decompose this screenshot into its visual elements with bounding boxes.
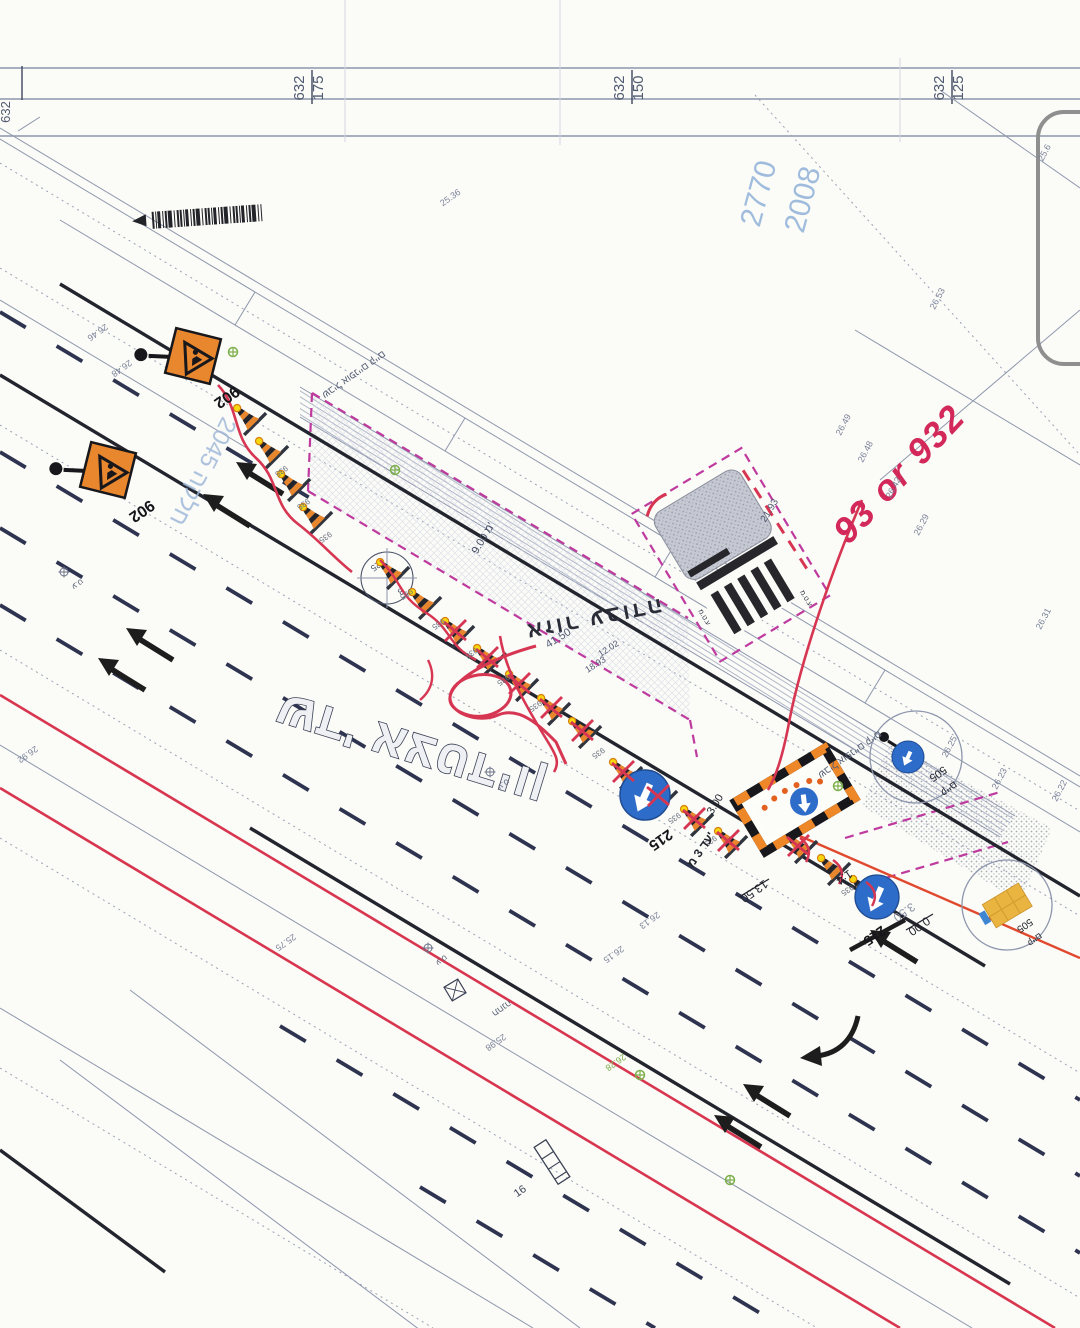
dim-label: עד 3 מ' <box>684 829 718 869</box>
elevation: 26.22 <box>1050 778 1069 803</box>
station-offset: 150 <box>630 75 647 100</box>
block-number: 2008 <box>778 163 827 236</box>
elevation: 26.49 <box>834 412 853 437</box>
ladder-symbol <box>534 1140 570 1185</box>
cone-label: 935 <box>666 811 683 826</box>
cone-label: 935 <box>590 746 607 761</box>
station-offset: 175 <box>310 75 327 100</box>
elevation: 25.75 <box>274 932 298 953</box>
station-label: 632 <box>611 75 628 100</box>
survey-point-label: ע.ט <box>70 577 85 592</box>
sign-215-label: 215 <box>861 923 889 950</box>
block-number: 2770 <box>734 157 783 230</box>
traffic-plan-scan: ע.ט.מ ע.ט.מ 25 8 <box>0 0 1080 1328</box>
elevation: 26.31 <box>1034 606 1053 631</box>
plan-drawing: ע.ט.מ ע.ט.מ 25 8 <box>0 0 1080 1328</box>
crosswalk-note: ע.ט.מ <box>798 589 813 607</box>
elevation: 26.46 <box>86 322 110 343</box>
monument-square <box>444 979 466 1001</box>
keep-right-sign-1 <box>620 770 670 820</box>
station-label: 632 <box>931 75 948 100</box>
shelter-existing-label: קיים <box>1025 931 1044 948</box>
barcode <box>132 206 263 227</box>
station-word-label: תחנה <box>490 998 513 1018</box>
cone-label: 935 <box>463 646 480 661</box>
bus-stop-sign-icon <box>892 741 924 773</box>
elevation: 26.48 <box>856 439 875 464</box>
dim-label: 3.00 <box>705 792 726 817</box>
elevation: 26.48 <box>110 358 134 379</box>
bike-path-note: שביל אופניים קיים <box>320 348 388 401</box>
elevation: 26.15 <box>602 944 626 965</box>
elevation: 26.53 <box>928 286 947 311</box>
elevation: 26.25 <box>940 734 959 759</box>
lot-number: 16 <box>512 1183 529 1200</box>
elevation: 25.98 <box>484 1032 508 1053</box>
station-offset: 125 <box>950 75 967 100</box>
elevation: 26.29 <box>912 512 931 537</box>
survey-point-labels: ע.ט ע.ט ע.ט תחנה 16 <box>70 577 529 1200</box>
turn-arrow <box>800 1016 858 1066</box>
station-label: 632 <box>291 75 308 100</box>
sign-215-label: 215 <box>645 826 675 854</box>
elevation: 25.36 <box>438 187 462 208</box>
top-chainage-road <box>0 0 1080 145</box>
station-label: 632 <box>0 101 13 123</box>
sign-902-label: 902 <box>126 496 158 525</box>
